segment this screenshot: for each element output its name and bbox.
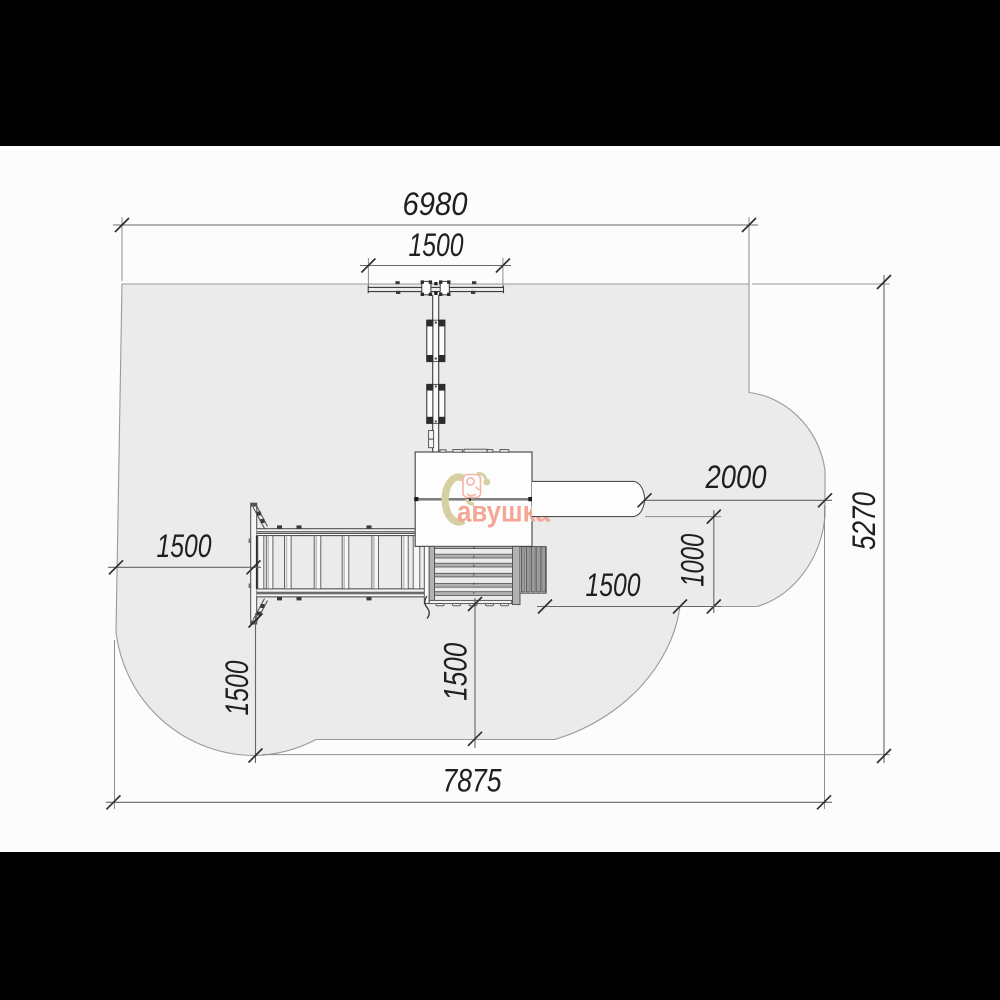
svg-text:1500: 1500: [219, 660, 255, 715]
svg-text:2000: 2000: [705, 459, 767, 495]
svg-text:5270: 5270: [846, 492, 882, 550]
svg-text:1500: 1500: [438, 643, 474, 701]
svg-text:1000: 1000: [675, 534, 711, 587]
svg-text:1500: 1500: [157, 528, 212, 564]
svg-text:6980: 6980: [403, 186, 468, 222]
svg-text:1500: 1500: [409, 227, 464, 263]
svg-text:1500: 1500: [586, 567, 641, 603]
svg-text:7875: 7875: [443, 763, 502, 799]
